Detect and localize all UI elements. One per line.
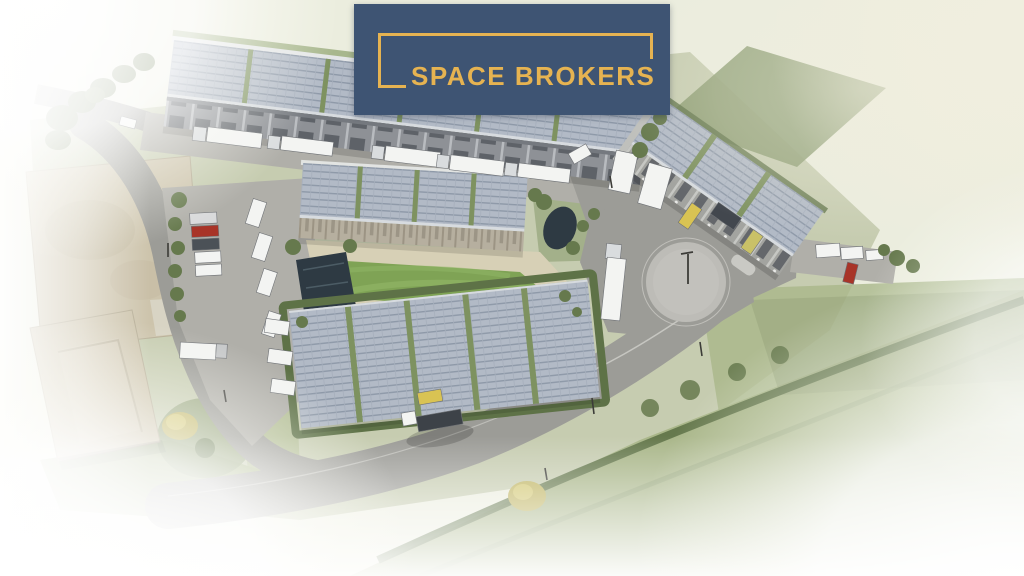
render-canvas: SPACE BROKERS (0, 0, 1024, 576)
logo-banner: SPACE BROKERS (354, 4, 670, 115)
brand-name: SPACE BROKERS (406, 59, 660, 94)
